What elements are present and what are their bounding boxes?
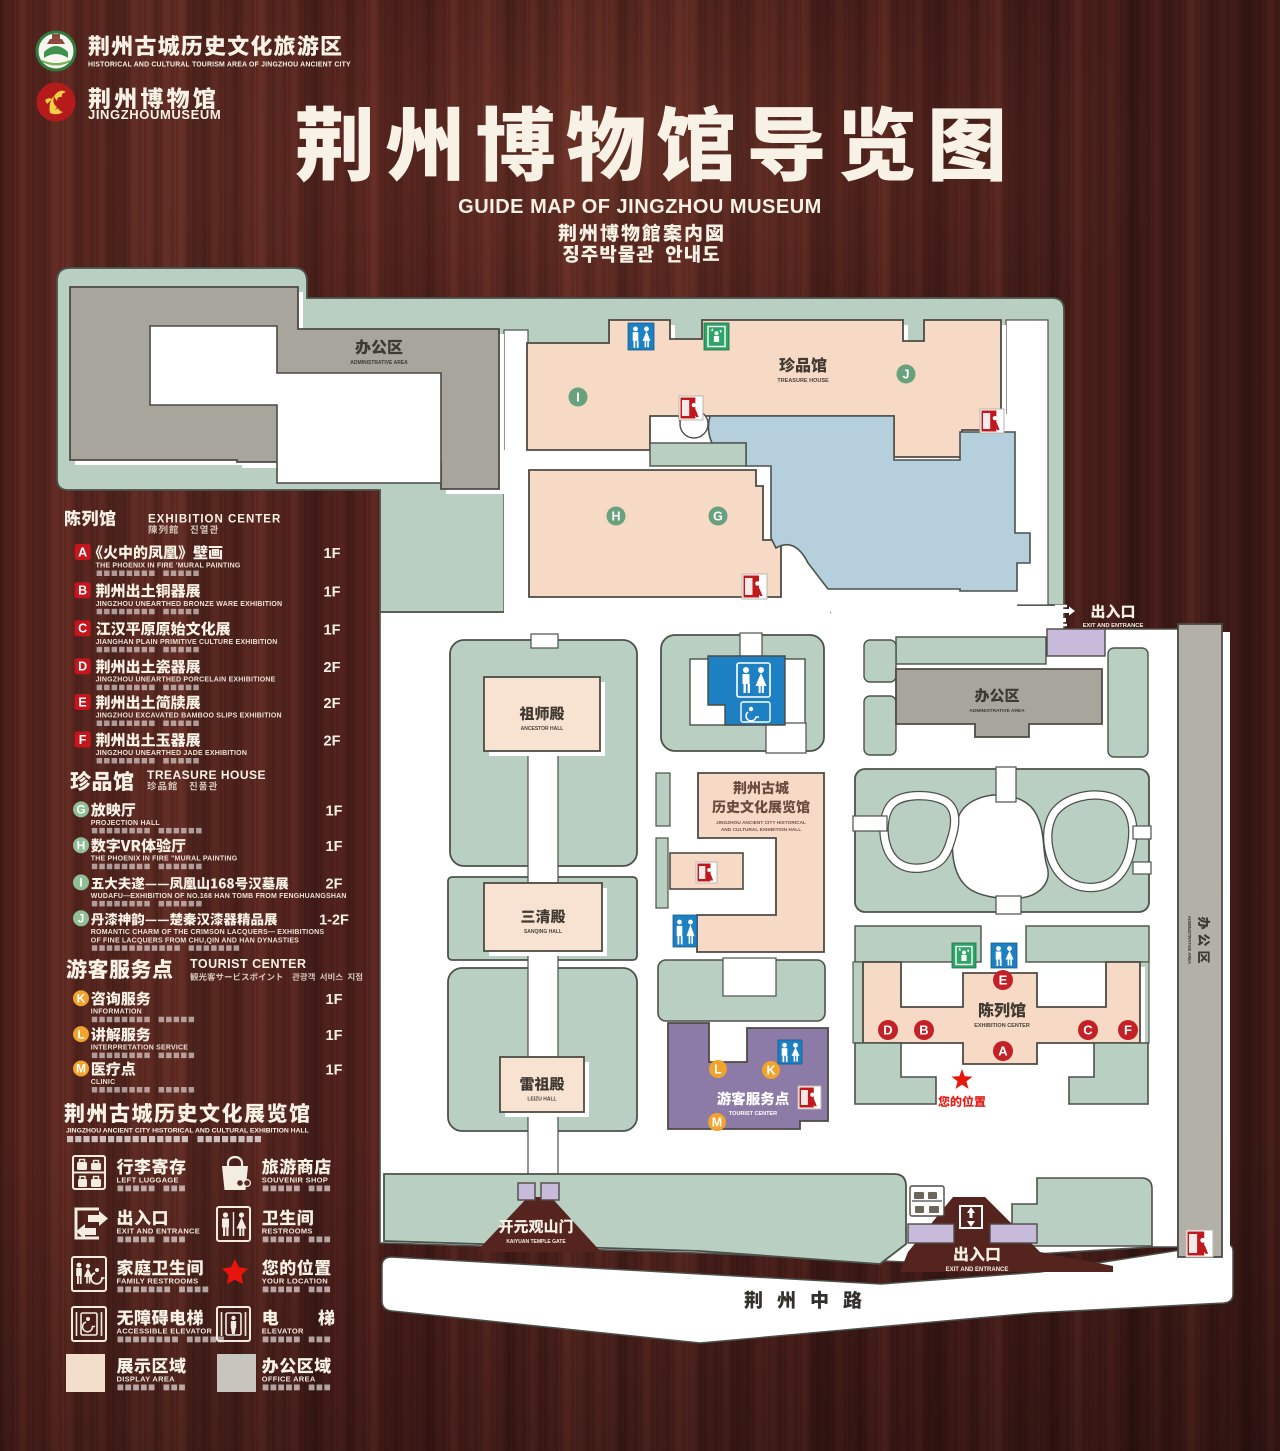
svg-text:EXIT AND ENTRANCE: EXIT AND ENTRANCE [1083,623,1144,629]
svg-text:ELEVATOR: ELEVATOR [262,1327,304,1336]
svg-text:M: M [712,1115,722,1129]
svg-text:JIANGHAN PLAIN PRIMITIVE CULTU: JIANGHAN PLAIN PRIMITIVE CULTURE EXHIBIT… [96,639,278,646]
svg-text:M: M [76,1062,86,1076]
svg-text:TOURIST CENTER: TOURIST CENTER [190,957,307,971]
svg-text:OFFICE AREA: OFFICE AREA [262,1375,316,1384]
svg-text:WUDAFU—EXHIBITION OF NO.168 HA: WUDAFU—EXHIBITION OF NO.168 HAN TOMB FRO… [91,893,347,900]
svg-text:YOUR LOCATION: YOUR LOCATION [262,1277,328,1286]
svg-text:PROJECTION HALL: PROJECTION HALL [91,820,161,827]
svg-text:K: K [766,1063,775,1077]
svg-text:OF FINE LACQUERS FROM CHU,QIN: OF FINE LACQUERS FROM CHU,QIN AND HAN DY… [91,937,299,944]
svg-text:GUIDE MAP OF JINGZHOU MUSEUM: GUIDE MAP OF JINGZHOU MUSEUM [458,196,822,218]
svg-text:CLINIC: CLINIC [91,1079,116,1086]
svg-text:F: F [1124,1023,1132,1038]
svg-text:KAIYUAN TEMPLE GATE: KAIYUAN TEMPLE GATE [506,1239,566,1245]
svg-text:ADMINISTRATIVE AREA: ADMINISTRATIVE AREA [1187,916,1192,964]
svg-text:LEIZU HALL: LEIZU HALL [527,1097,556,1103]
svg-text:1F: 1F [326,803,343,819]
svg-text:L: L [714,1062,722,1076]
svg-text:1F: 1F [326,1063,343,1079]
svg-text:L: L [77,1027,84,1041]
svg-text:TREASURE HOUSE: TREASURE HOUSE [777,378,829,384]
svg-text:JINGZHOU UNEARTHED JADE EXHIBI: JINGZHOU UNEARTHED JADE EXHIBITION [96,750,247,757]
svg-text:G: G [76,803,85,817]
svg-text:FAMILY RESTROOMS: FAMILY RESTROOMS [117,1277,199,1286]
svg-text:G: G [713,509,723,523]
svg-text:THE PHOENIX IN FIRE 'MURAL PAI: THE PHOENIX IN FIRE 'MURAL PAINTING [96,563,241,570]
svg-text:B: B [919,1023,928,1038]
svg-text:F: F [79,733,87,747]
svg-text:B: B [78,584,87,598]
svg-text:JINGZHOU EXCAVATED BAMBOO SLIP: JINGZHOU EXCAVATED BAMBOO SLIPS EXHIBITI… [96,713,282,720]
svg-text:E: E [999,973,1008,988]
svg-text:ACCESSIBLE ELEVATOR: ACCESSIBLE ELEVATOR [117,1327,213,1336]
svg-text:1F: 1F [326,1028,343,1044]
svg-text:K: K [77,991,86,1005]
svg-text:H: H [611,509,620,523]
svg-text:1F: 1F [324,584,341,600]
svg-text:TREASURE HOUSE: TREASURE HOUSE [147,768,266,782]
svg-text:1F: 1F [326,992,343,1008]
svg-text:D: D [883,1023,892,1038]
svg-text:1F: 1F [326,839,343,855]
svg-text:2F: 2F [324,696,341,712]
svg-text:A: A [78,545,87,559]
svg-text:LEFT LUGGAGE: LEFT LUGGAGE [117,1176,179,1185]
svg-text:A: A [998,1044,1008,1059]
svg-text:TOURIST CENTER: TOURIST CENTER [729,1111,777,1117]
svg-text:ROMANTIC CHARM OF THE CRIMSON: ROMANTIC CHARM OF THE CRIMSON LACQUERS— … [91,929,325,936]
svg-text:J: J [903,367,910,381]
svg-text:SANQING HALL: SANQING HALL [524,929,562,935]
svg-text:DISPLAY AREA: DISPLAY AREA [117,1375,176,1384]
svg-text:J: J [78,912,85,926]
svg-text:D: D [78,660,87,674]
svg-text:H: H [77,838,86,852]
svg-text:THE PHOENIX IN FIRE "MURAL PAI: THE PHOENIX IN FIRE "MURAL PAINTING [91,856,238,863]
svg-text:INFORMATION: INFORMATION [91,1009,142,1016]
svg-text:SOUVENIR SHOP: SOUVENIR SHOP [262,1176,328,1185]
svg-text:HISTORICAL AND CULTURAL TOURIS: HISTORICAL AND CULTURAL TOURISM AREA OF … [88,62,351,69]
svg-text:ADMINISTRATIVE AREA: ADMINISTRATIVE AREA [350,360,408,366]
svg-text:ADMINISTRATIVE AREA: ADMINISTRATIVE AREA [969,708,1025,714]
svg-text:ANCESTOR HALL: ANCESTOR HALL [521,726,564,732]
svg-text:2F: 2F [324,734,341,750]
svg-text:EXIT AND ENTRANCE: EXIT AND ENTRANCE [117,1227,201,1236]
svg-text:2F: 2F [324,660,341,676]
svg-text:1F: 1F [324,622,341,638]
svg-text:AND CULTURAL EXHIBITION HALL: AND CULTURAL EXHIBITION HALL [721,827,801,833]
svg-text:EXHIBITION CENTER: EXHIBITION CENTER [974,1023,1030,1029]
svg-text:JINGZHOU UNEARTHED PORCELAIN E: JINGZHOU UNEARTHED PORCELAIN EXHIBITIONE [96,677,276,684]
svg-text:I: I [576,390,579,404]
svg-text:RESTROOMS: RESTROOMS [262,1227,313,1236]
svg-text:JINGZHOUMUSEUM: JINGZHOUMUSEUM [88,107,221,122]
svg-text:1F: 1F [324,546,341,562]
svg-text:E: E [78,695,86,709]
svg-text:EXIT AND ENTRANCE: EXIT AND ENTRANCE [946,1267,1009,1273]
svg-text:2F: 2F [326,876,343,892]
svg-text:JINGZHOU ANCIENT CITY HISTORIC: JINGZHOU ANCIENT CITY HISTORICAL AND CUL… [66,1128,309,1135]
svg-text:EXHIBITION CENTER: EXHIBITION CENTER [148,514,281,526]
svg-text:JINGZHOU ANCIENT CITY HISTORIC: JINGZHOU ANCIENT CITY HISTORICAL [716,820,806,826]
svg-text:INTERPRETATION SERVICE: INTERPRETATION SERVICE [91,1045,188,1052]
svg-text:C: C [78,622,87,636]
svg-text:C: C [1083,1023,1093,1038]
svg-text:JINGZHOU UNEARTHED BRONZE WARE: JINGZHOU UNEARTHED BRONZE WARE EXHIBITIO… [96,601,283,608]
svg-text:I: I [79,876,82,890]
svg-text:1-2F: 1-2F [319,912,349,928]
